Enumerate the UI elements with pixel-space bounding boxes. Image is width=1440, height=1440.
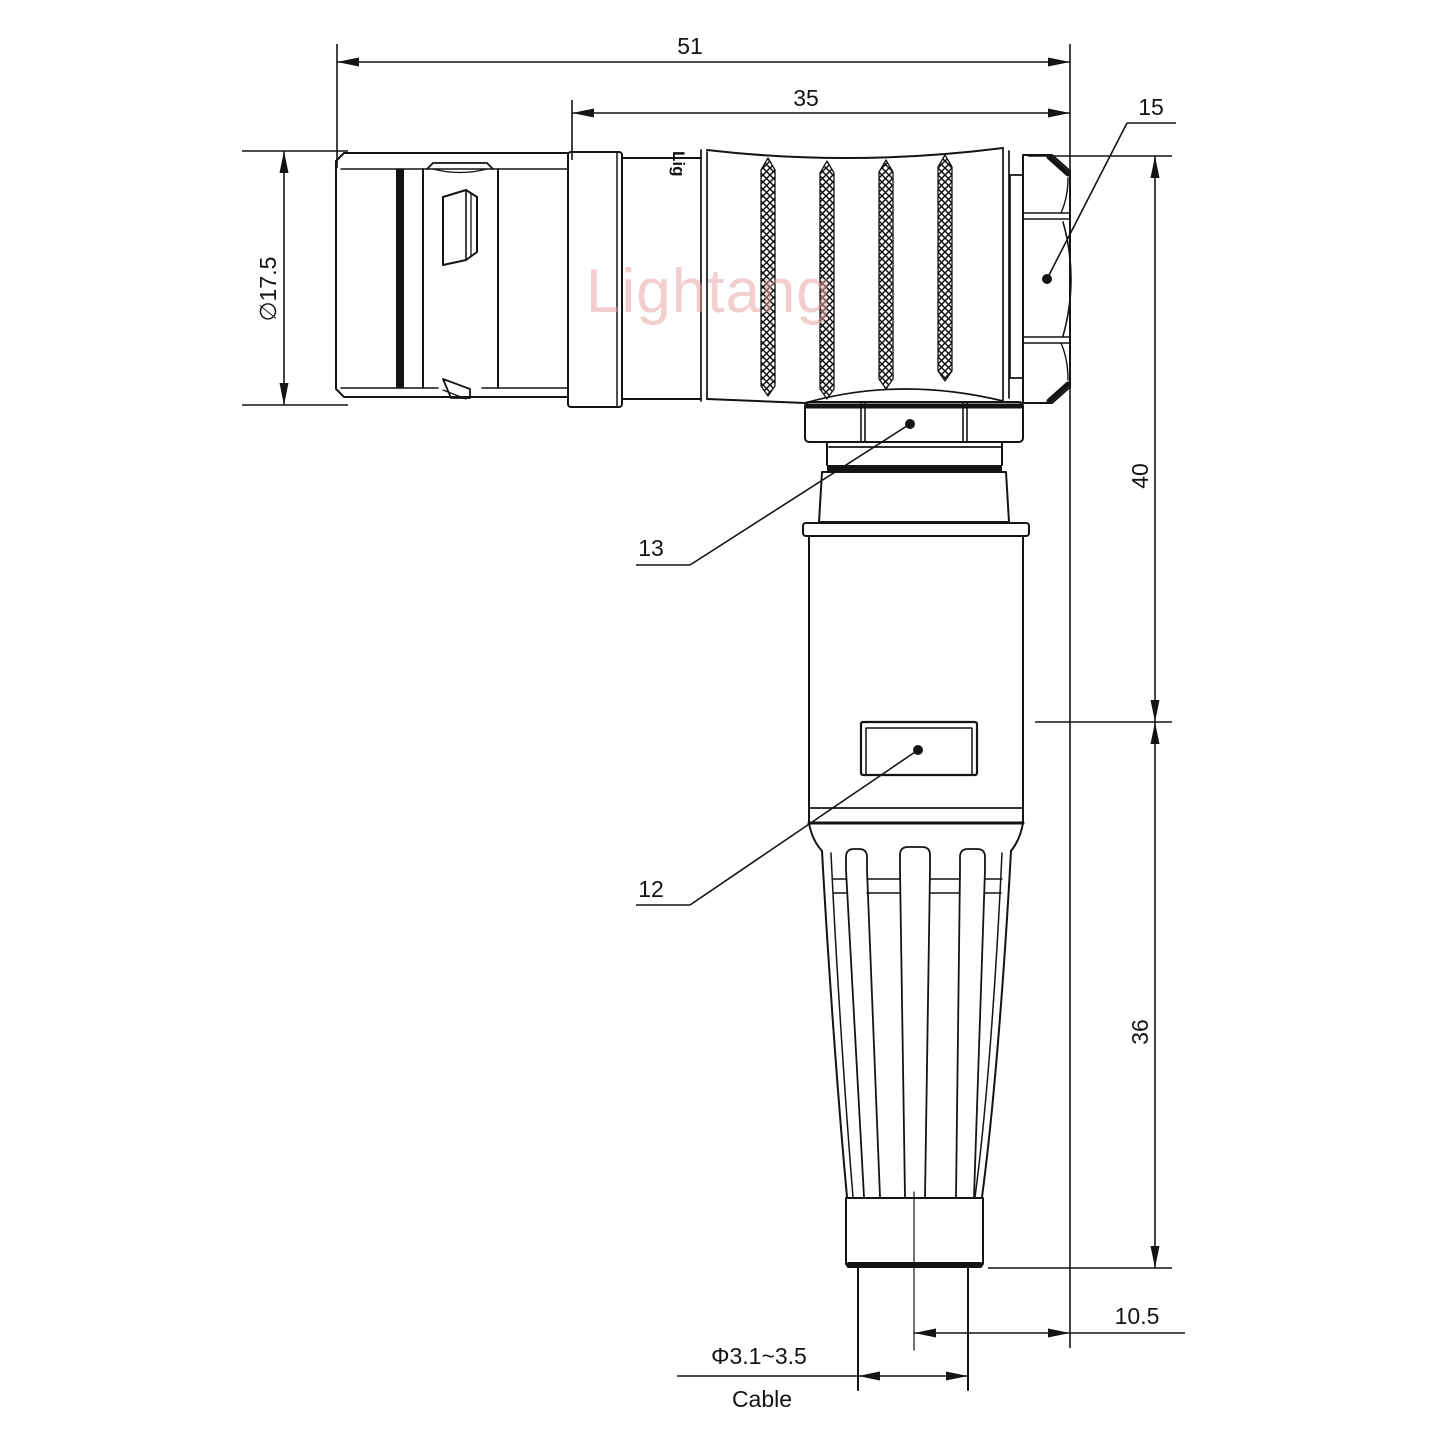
callout-12-text: 12 [638, 876, 664, 902]
knurled-grip [707, 148, 1009, 403]
dim-40-text: 40 [1127, 463, 1153, 489]
rear-step [1009, 175, 1023, 378]
knurl-band [761, 158, 775, 396]
dim-overall-length: 51 [337, 33, 1070, 1348]
strain-relief-boot [809, 823, 1023, 1197]
plug-barrel [336, 153, 568, 399]
callout-15: 15 [1042, 94, 1176, 284]
technical-drawing-page: Lig [0, 0, 1440, 1440]
dim-upper-height: 40 [1028, 156, 1172, 722]
dim-17-5-text: ∅17.5 [255, 257, 281, 322]
dim-51-text: 51 [677, 33, 703, 59]
callout-13: 13 [636, 419, 915, 565]
dim-10-5-text: 10.5 [1115, 1303, 1160, 1329]
knurl-band [938, 155, 952, 381]
dim-lower-height: 36 [988, 722, 1172, 1268]
dim-cable-diameter: Φ3.1~3.5 Cable [677, 1343, 968, 1412]
dim-35-text: 35 [793, 85, 819, 111]
latch-window [443, 190, 477, 265]
dim-cable-diameter-text: Φ3.1~3.5 [711, 1343, 807, 1369]
connector-drawing: Lig [0, 0, 1440, 1440]
mid-sleeve [622, 150, 707, 401]
dim-cable-offset: 10.5 [914, 1303, 1185, 1338]
callout-12: 12 [636, 745, 923, 905]
coupling-ring [568, 152, 622, 407]
cable-lines [858, 1268, 968, 1390]
upper-connector-view: Lig [336, 148, 1071, 1390]
elbow-ring [819, 472, 1009, 522]
dimension-annotations: 51 35 ∅17.5 40 [242, 33, 1185, 1412]
callout-15-text: 15 [1138, 94, 1164, 120]
callout-13-text: 13 [638, 535, 664, 561]
brand-mark-text: Lig [669, 151, 688, 177]
knurl-band [879, 160, 893, 389]
knurl-band [820, 161, 834, 399]
elbow-body [803, 523, 1029, 823]
dim-front-diameter: ∅17.5 [242, 151, 348, 405]
part-callouts: 15 13 12 [636, 94, 1176, 905]
cable-label-text: Cable [732, 1386, 792, 1412]
dim-36-text: 36 [1127, 1019, 1153, 1045]
